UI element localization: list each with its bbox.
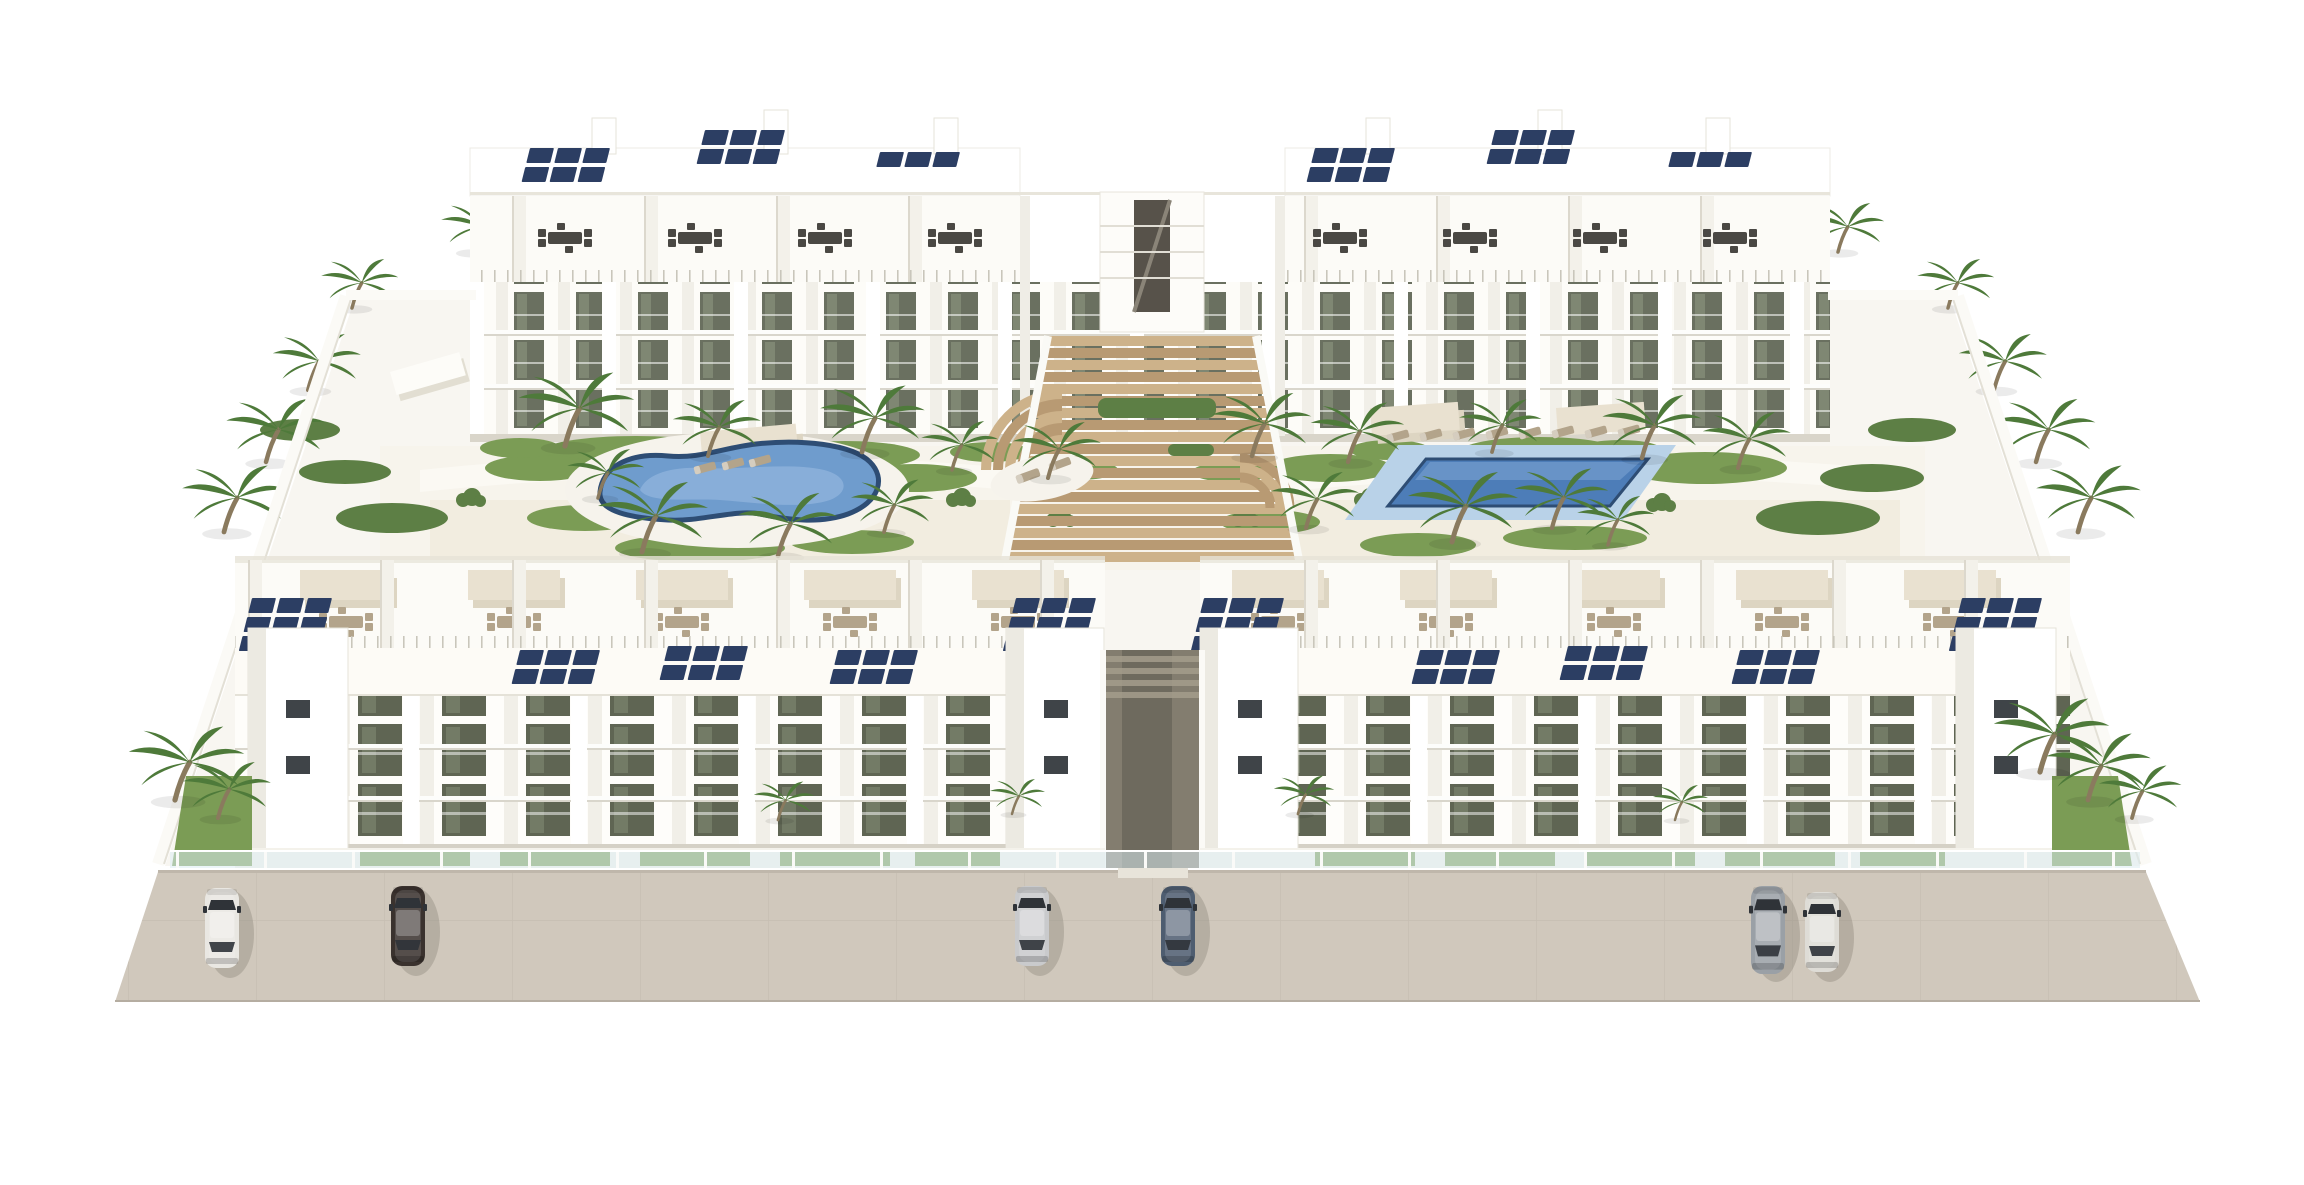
stair-tread [1041,372,1263,382]
tower-window [286,756,310,774]
parked-car-black [389,886,427,966]
balcony-divider [602,282,616,434]
stair-tread [1031,420,1272,430]
balcony-divider [1790,282,1804,434]
tower-window [286,700,310,718]
terrace-dividers [235,560,1105,648]
parked-car-slate-blue [1159,886,1197,966]
tower-window [1994,700,2018,718]
balcony-divider [1915,696,1931,844]
tower-window [1044,756,1068,774]
central-alley [1100,650,1205,868]
tower-window [1044,700,1068,718]
back-wall-right [1828,290,1958,300]
balcony-divider [1411,696,1427,844]
front-left-facade-floor-1 [235,802,1105,844]
stair-tread [1014,504,1289,514]
terrace-dividers [1285,196,1830,282]
stair-tread [1012,516,1292,526]
slab-shadow-line [235,800,1105,802]
stair-planter [1168,444,1214,456]
balustrade-handrail [170,850,2140,852]
roof-edge-line [1200,694,2070,696]
tower-window [1238,700,1262,718]
terrace-railing [470,270,1020,282]
slab-shadow-line [470,334,1830,336]
tower-window [1238,756,1262,774]
tower-window [1994,756,2018,774]
stair-tread [1026,444,1277,454]
stair-planter [1098,398,1216,418]
hedge [1868,418,1956,442]
rect-pool-highlight [1415,462,1640,480]
central-bridge [1100,192,1204,332]
hedge [299,460,391,484]
parked-car-silver [1013,886,1051,966]
roof-tower [934,118,958,154]
slab-shadow-line [235,748,1105,750]
front-right-facade-floor-3 [1200,696,2070,744]
balustrade-posts [170,852,2140,868]
hedge [1820,464,1924,492]
street [115,868,2200,1002]
balcony-divider [470,282,484,434]
balcony-divider [739,696,755,844]
terrace-dividers [1200,560,2070,648]
alley-step [1105,692,1200,698]
terrace-railing [1285,270,1830,282]
front-left-facade-floor-3 [235,696,1105,744]
balcony-divider [1579,696,1595,844]
tower-side-shade [1956,628,1974,850]
stair-tread [1048,336,1256,346]
slab-shadow-line [1200,748,2070,750]
pool-water-highlight [640,466,844,505]
alley-wall [1199,650,1205,868]
roof-edge-line [235,694,1105,696]
stair-tread [1007,540,1296,550]
balcony-divider [1526,282,1540,434]
hedge [1756,501,1880,535]
balcony-divider [907,696,923,844]
front-right-facade-floor-1 [1200,802,2070,844]
parked-car-white-2 [1803,892,1841,972]
balcony-divider [734,282,748,434]
aerial-render [0,0,2304,1185]
solar-array [876,152,960,167]
balcony-divider [571,696,587,844]
alley-step [1105,668,1200,674]
stair-tread [1038,384,1265,394]
balcony-divider [403,696,419,844]
alley-wall [1100,650,1106,868]
parked-car-white [203,888,241,968]
roof-tower [1706,118,1730,154]
solar-array [1668,152,1752,167]
alley-step [1105,680,1200,686]
front-left-facade-floor-2 [235,750,1105,796]
slab-shadow-line [1200,800,2070,802]
street-bottom-edge [115,1000,2200,1002]
hedge [336,503,448,533]
alley-step [1105,656,1200,662]
rendering-canvas [0,0,2304,1185]
balcony-divider [1747,696,1763,844]
stair-tread [1043,360,1260,370]
back-wall-left [346,290,476,300]
entrance-step [1118,868,1188,878]
parked-car-gray [1749,886,1787,974]
stair-tread [1010,528,1295,538]
stair-tread [1046,348,1259,358]
